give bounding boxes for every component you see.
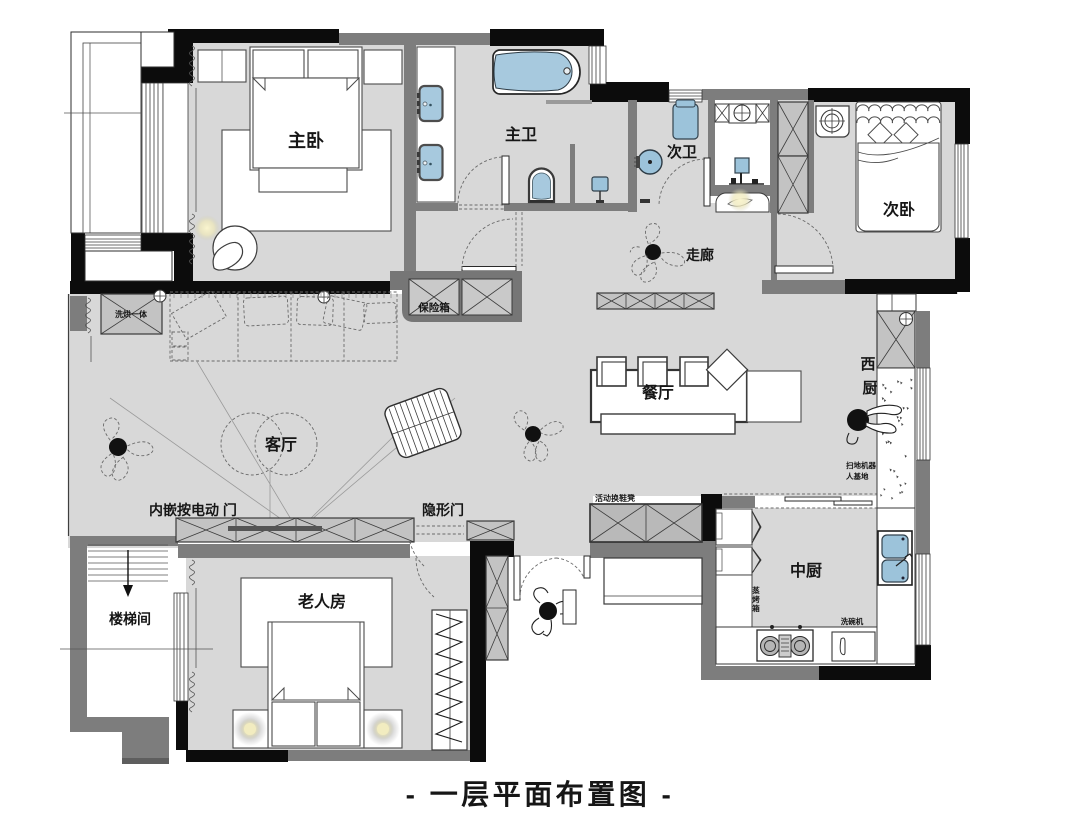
svg-text:中厨: 中厨 bbox=[790, 561, 822, 580]
svg-text:次卧: 次卧 bbox=[883, 200, 915, 219]
svg-text:洗烘一体: 洗烘一体 bbox=[115, 309, 148, 319]
svg-text:主卧: 主卧 bbox=[288, 130, 324, 151]
svg-text:餐厅: 餐厅 bbox=[641, 383, 674, 402]
svg-text:扫地机器: 扫地机器 bbox=[846, 460, 876, 470]
svg-text:洗碗机: 洗碗机 bbox=[841, 616, 864, 626]
svg-text:保险箱: 保险箱 bbox=[417, 301, 450, 314]
svg-text:活动换鞋凳: 活动换鞋凳 bbox=[595, 493, 636, 503]
svg-text:西: 西 bbox=[860, 356, 875, 373]
svg-text:走廊: 走廊 bbox=[686, 247, 714, 263]
svg-text:人基地: 人基地 bbox=[846, 471, 869, 481]
svg-text:客厅: 客厅 bbox=[265, 435, 297, 454]
svg-text:烤: 烤 bbox=[752, 594, 760, 604]
svg-text:楼梯间: 楼梯间 bbox=[109, 611, 151, 627]
svg-text:箱: 箱 bbox=[752, 603, 760, 613]
svg-text:内嵌按电动 门: 内嵌按电动 门 bbox=[149, 502, 237, 518]
svg-text:隐形门: 隐形门 bbox=[422, 502, 464, 518]
svg-text:老人房: 老人房 bbox=[297, 592, 346, 611]
svg-text:- 一层平面布置图 -: - 一层平面布置图 - bbox=[406, 779, 675, 810]
svg-text:蒸: 蒸 bbox=[752, 585, 760, 595]
svg-text:次卫: 次卫 bbox=[667, 143, 697, 161]
svg-text:厨: 厨 bbox=[862, 380, 877, 397]
svg-text:主卫: 主卫 bbox=[505, 125, 537, 144]
